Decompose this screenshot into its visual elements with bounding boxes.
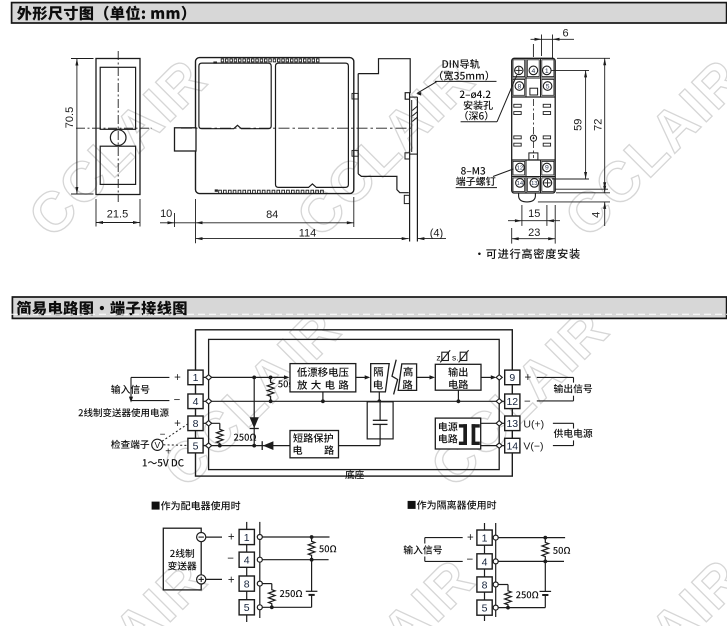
svg-text:+: +	[165, 447, 171, 458]
svg-text:114: 114	[299, 227, 317, 239]
svg-text:5: 5	[482, 603, 488, 615]
svg-text:−: −	[466, 554, 473, 566]
svg-text:70.5: 70.5	[64, 107, 76, 128]
svg-text:8: 8	[244, 579, 250, 591]
svg-text:V(−): V(−)	[523, 441, 543, 453]
svg-text:CCLAIR: CCLAIR	[150, 296, 353, 499]
svg-text:z: z	[436, 352, 440, 362]
svg-text:−: −	[174, 395, 181, 407]
svg-text:5: 5	[193, 440, 199, 452]
svg-text:−: −	[227, 553, 234, 565]
svg-text:−: −	[524, 396, 531, 408]
svg-text:CCLAIR: CCLAIR	[284, 546, 487, 626]
svg-text:CCLAIR: CCLAIR	[16, 546, 219, 626]
svg-text:1: 1	[482, 533, 488, 545]
svg-text:21.5: 21.5	[107, 209, 128, 221]
svg-text:14: 14	[517, 181, 524, 187]
svg-text:1: 1	[545, 68, 549, 75]
svg-text:59: 59	[573, 119, 585, 131]
svg-text:4: 4	[532, 68, 536, 75]
svg-text:9: 9	[509, 372, 515, 384]
svg-text:84: 84	[266, 209, 278, 221]
svg-text:4: 4	[482, 556, 488, 568]
svg-text:13: 13	[531, 181, 537, 187]
svg-text:4: 4	[590, 212, 602, 218]
svg-text:5: 5	[244, 602, 250, 614]
svg-text:s.: s.	[452, 352, 459, 362]
svg-text:9: 9	[545, 165, 549, 172]
svg-text:13: 13	[506, 418, 518, 430]
svg-text:1: 1	[244, 532, 250, 544]
svg-text:+: +	[174, 372, 181, 384]
svg-text:6: 6	[562, 27, 568, 39]
svg-text:U(+): U(+)	[523, 418, 544, 430]
svg-text:8: 8	[518, 83, 522, 90]
svg-text:23: 23	[528, 227, 540, 239]
svg-text:CCLAIR: CCLAIR	[284, 46, 487, 249]
svg-text:4: 4	[193, 396, 199, 408]
svg-text:+: +	[467, 532, 474, 544]
svg-text:8: 8	[482, 579, 488, 591]
svg-text:15: 15	[528, 208, 540, 220]
svg-text:5: 5	[546, 83, 550, 90]
svg-text:4: 4	[244, 555, 250, 567]
svg-text:14: 14	[506, 440, 518, 452]
svg-text:+: +	[228, 575, 235, 587]
svg-text:+: +	[174, 418, 181, 430]
svg-text:+: +	[524, 372, 531, 384]
svg-text:CCLAIR: CCLAIR	[552, 46, 727, 249]
svg-text:V: V	[154, 440, 160, 450]
svg-text:12: 12	[517, 166, 523, 172]
svg-text:12: 12	[506, 396, 518, 408]
svg-text:+: +	[228, 532, 235, 544]
svg-text:8: 8	[193, 418, 199, 430]
svg-text:10: 10	[160, 208, 172, 220]
svg-text:1: 1	[193, 372, 199, 384]
svg-text:(4): (4)	[430, 227, 443, 239]
svg-text:72: 72	[593, 119, 605, 131]
svg-text:−: −	[160, 429, 166, 440]
svg-text:CCLAIR: CCLAIR	[552, 546, 727, 626]
